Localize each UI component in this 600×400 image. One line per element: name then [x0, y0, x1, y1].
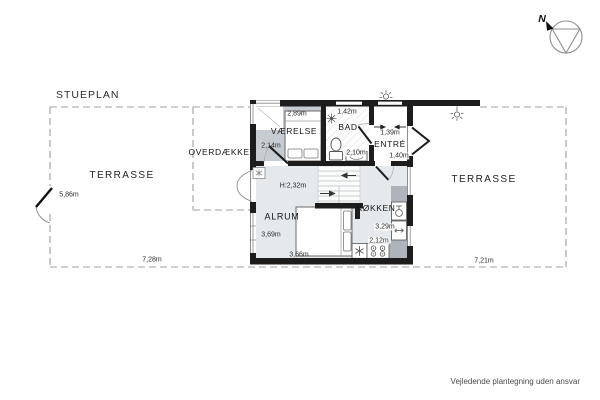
gate-width-label: 5,86m [59, 192, 78, 199]
dim-alrum-width: 3,66m [289, 252, 308, 259]
room-label-bad: BAD [338, 123, 357, 132]
ceiling-height-label: H:2,32m [280, 183, 306, 190]
dim-koekken-depth: 3,29m [374, 224, 395, 231]
dim-vaerelse-width: 2,89m [287, 111, 306, 118]
terrace-left-label: TERRASSE [89, 171, 154, 181]
french-doors-icon [237, 171, 252, 202]
bed-icon-vaerelse [285, 111, 321, 161]
dim-vaerelse-depth: 2,14m [261, 143, 280, 150]
floorplan-page: STUEPLAN N TERRASSE 5,86m 7,28m OVERDÆKK… [0, 0, 600, 400]
entrance-door-icon [412, 128, 429, 155]
terrace-right-label: TERRASSE [451, 175, 516, 185]
terrace-right-width: 7,21m [474, 258, 493, 265]
plan-title: STUEPLAN [56, 90, 119, 101]
room-label-alrum: ALRUM [264, 213, 299, 222]
dim-entre-width: 1,39m [380, 130, 399, 137]
bed-icon-alrum [296, 207, 352, 256]
installation-symbol-icon [253, 168, 265, 179]
dim-bad-width: 1,42m [337, 109, 356, 116]
stove-icon [367, 244, 389, 259]
freezer-icon [352, 244, 367, 259]
wall-lamp-icon-entrance [380, 90, 393, 99]
room-label-vaerelse: VÆRELSE [271, 127, 317, 136]
shower-icon [327, 114, 337, 124]
dim-entre-depth: 1,40m [388, 153, 409, 160]
floorplan-drawing [0, 0, 600, 400]
disclaimer-text: Vejledende plantegning uden ansvar [451, 377, 580, 386]
north-compass-icon [546, 21, 582, 53]
wall-lamp-icon-terrace [451, 107, 464, 121]
terrace-left-width: 7,28m [142, 257, 161, 264]
stairs [318, 166, 360, 203]
room-label-koekken: KØKKEN [356, 204, 395, 213]
compass-north-label: N [538, 14, 546, 25]
dim-bad-inner: 2,10m [345, 150, 366, 157]
dim-alrum-depth: 3,69m [261, 232, 280, 239]
overdaekket-label: OVERDÆKKET [189, 148, 256, 157]
dim-koekken-width: 2,12m [368, 238, 389, 245]
room-label-entre: ENTRÉ [374, 140, 406, 149]
